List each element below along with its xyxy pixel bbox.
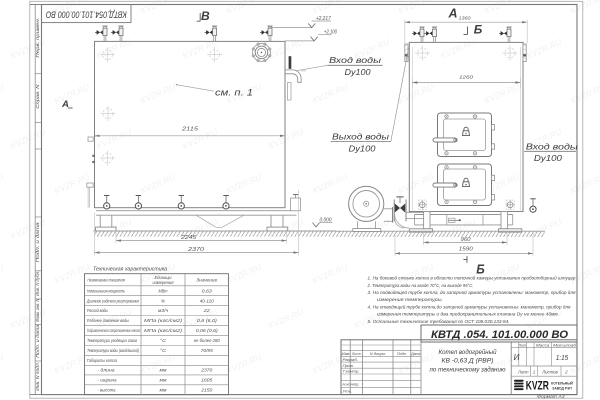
svg-text:KVZR.RU: KVZR.RU — [0, 0, 6, 16]
svg-text:KVZR.RU: KVZR.RU — [139, 0, 178, 16]
svg-text:5. Остальные технические требо: 5. Остальные технические требования по О… — [368, 319, 510, 324]
svg-text:В: В — [201, 9, 210, 23]
svg-text:КВТД .054. 101.00.000 ВО: КВТД .054. 101.00.000 ВО — [431, 329, 568, 341]
svg-text:Изм: Изм — [342, 352, 350, 356]
svg-text:измерения: измерения — [153, 280, 175, 285]
svg-text:Рабочее давление воды: Рабочее давление воды — [87, 318, 130, 323]
svg-text:Значение: Значение — [196, 278, 218, 283]
svg-text:1: 1 — [533, 369, 536, 374]
svg-text:1260: 1260 — [459, 75, 473, 81]
svg-text:Номинальная мощность: Номинальная мощность — [87, 288, 125, 293]
svg-text:Листов: Листов — [541, 369, 558, 374]
svg-text:2370: 2370 — [200, 368, 213, 373]
svg-text:- высота: - высота — [98, 387, 116, 392]
svg-text:KVZR.RU: KVZR.RU — [397, 81, 436, 106]
svg-text:Выход воды: Выход воды — [332, 133, 389, 142]
svg-text:Подп.: Подп. — [397, 352, 407, 356]
svg-text:- ширина: - ширина — [98, 377, 117, 382]
svg-text:Лит.: Лит. — [517, 343, 526, 348]
svg-text:КОТЕЛЬНЫЙ: КОТЕЛЬНЫЙ — [551, 382, 573, 386]
svg-text:KVZR.RU: KVZR.RU — [139, 81, 178, 106]
svg-text:Инв. N подл.: Инв. N подл. — [35, 362, 40, 391]
svg-text:70/95: 70/95 — [201, 348, 214, 353]
svg-text:1590: 1590 — [459, 247, 473, 253]
svg-text:KVZR.RU: KVZR.RU — [311, 81, 350, 106]
svg-text:Гидравлическое сопротивление к: Гидравлическое сопротивление котла — [87, 328, 140, 333]
svg-text:Взам. инв. N: Взам. инв. N — [35, 298, 40, 322]
svg-text:KVZR.RU: KVZR.RU — [0, 351, 6, 376]
svg-text:+2.100: +2.100 — [324, 30, 337, 36]
svg-text:Н.контр.: Н.контр. — [343, 382, 360, 387]
svg-text:KVZR.RU: KVZR.RU — [95, 126, 134, 151]
svg-text:KVZR.RU: KVZR.RU — [267, 36, 306, 61]
svg-text:KVZR.RU: KVZR.RU — [139, 351, 178, 376]
svg-text:КВТД.054.101.00.000 ВО: КВТД.054.101.00.000 ВО — [46, 9, 127, 19]
svg-text:ЗАВОД РЭП: ЗАВОД РЭП — [552, 387, 572, 391]
svg-text:1360: 1360 — [459, 15, 471, 21]
svg-text:Котел водогрейный: Котел водогрейный — [439, 348, 497, 356]
svg-text:А: А — [447, 6, 457, 20]
svg-text:°С: °С — [160, 338, 167, 343]
svg-text:мм: мм — [160, 387, 167, 392]
svg-text:А: А — [61, 99, 69, 110]
svg-text:Dy100: Dy100 — [349, 145, 377, 154]
svg-text:Температура уходящих газов: Температура уходящих газов — [87, 338, 138, 343]
svg-text:22: 22 — [203, 308, 211, 313]
svg-text:KVZR.RU: KVZR.RU — [483, 81, 522, 106]
svg-text:KVZR.RU: KVZR.RU — [397, 0, 436, 16]
svg-text:см. п. 1: см. п. 1 — [215, 88, 253, 98]
svg-text:Габариты котла: Габариты котла — [87, 358, 117, 363]
svg-text:Подп. и дата: Подп. и дата — [35, 324, 40, 358]
svg-text:Масштаб: Масштаб — [553, 343, 577, 348]
svg-text:Лист: Лист — [351, 352, 361, 356]
svg-text:KVZR.RU: KVZR.RU — [225, 0, 264, 16]
svg-text:Техническая характеристика: Техническая характеристика — [93, 266, 167, 272]
svg-text:измерения температуры.: измерения температуры. — [377, 297, 443, 302]
svg-text:40-110: 40-110 — [200, 298, 214, 303]
svg-text:KVZR.RU: KVZR.RU — [483, 261, 522, 286]
svg-text:2370: 2370 — [187, 247, 205, 253]
svg-text:2245: 2245 — [180, 235, 196, 241]
svg-text:N докум.: N докум. — [370, 352, 386, 356]
svg-text:°С: °С — [160, 348, 167, 353]
svg-text:Дата: Дата — [411, 352, 421, 356]
svg-text:Лист: Лист — [517, 369, 529, 374]
svg-text:Справ. N: Справ. N — [35, 84, 40, 109]
svg-text:KVZR.RU: KVZR.RU — [569, 261, 600, 286]
svg-text:Температура воды (вход/выход): Температура воды (вход/выход) — [87, 348, 139, 353]
svg-text:не более 280: не более 280 — [194, 338, 220, 343]
svg-text:KVZR.RU: KVZR.RU — [0, 261, 6, 286]
svg-text:KVZR.RU: KVZR.RU — [525, 306, 564, 331]
svg-text:2150: 2150 — [200, 387, 213, 392]
svg-text:%: % — [161, 298, 165, 303]
svg-text:измерения температуры и два пр: измерения температуры и два предохраните… — [377, 312, 559, 317]
svg-text:0,06 (0,6): 0,06 (0,6) — [196, 328, 219, 333]
svg-text:1:15: 1:15 — [556, 355, 569, 362]
svg-text:KVZR.RU: KVZR.RU — [569, 171, 600, 196]
svg-text:KVZR.RU: KVZR.RU — [569, 0, 600, 16]
svg-text:1. На боковой стенке котла в о: 1. На боковой стенке котла в области топ… — [368, 275, 576, 281]
svg-text:+2.217: +2.217 — [316, 16, 331, 22]
svg-text:KVZR.RU: KVZR.RU — [0, 81, 6, 106]
svg-text:Б: Б — [476, 263, 485, 277]
svg-text:KVZR.RU: KVZR.RU — [311, 261, 350, 286]
svg-text:Утв.: Утв. — [343, 388, 353, 393]
svg-text:Вход воды: Вход воды — [329, 56, 381, 65]
svg-text:KVZR.RU: KVZR.RU — [569, 81, 600, 106]
svg-text:Расход воды: Расход воды — [87, 308, 109, 313]
svg-text:МВт: МВт — [159, 288, 168, 293]
svg-text:KVZR.RU: KVZR.RU — [525, 216, 564, 241]
svg-text:KVZR.RU: KVZR.RU — [397, 171, 436, 196]
svg-text:KVZR.RU: KVZR.RU — [483, 0, 522, 16]
svg-text:KVZR.RU: KVZR.RU — [311, 0, 350, 16]
svg-text:KVZR.RU: KVZR.RU — [569, 351, 600, 376]
svg-text:Диапазон рабочего регулировани: Диапазон рабочего регулирования — [86, 298, 139, 303]
svg-text:KVZR.RU: KVZR.RU — [267, 306, 306, 331]
svg-text:KVZR.RU: KVZR.RU — [53, 171, 92, 196]
svg-text:мм: мм — [160, 377, 167, 382]
svg-text:- длина: - длина — [98, 368, 116, 373]
svg-text:КВ -0,63 Д (РВР): КВ -0,63 Д (РВР) — [442, 358, 494, 365]
svg-text:KVZR.RU: KVZR.RU — [311, 171, 350, 196]
svg-text:KVZR.RU: KVZR.RU — [53, 81, 92, 106]
svg-text:0,6 (6,0): 0,6 (6,0) — [197, 318, 218, 323]
svg-text:по техническому заданию: по техническому заданию — [430, 365, 506, 373]
svg-text:Б: Б — [474, 23, 483, 37]
svg-text:Инв. N дубл.: Инв. N дубл. — [35, 271, 40, 296]
svg-text:мм: мм — [160, 368, 167, 373]
svg-text:Т.контр.: Т.контр. — [343, 369, 360, 374]
svg-text:Подп. и дата: Подп. и дата — [35, 222, 40, 263]
svg-text:KVZR.RU: KVZR.RU — [53, 351, 92, 376]
svg-text:KVZR: KVZR — [526, 381, 550, 393]
svg-text:KVZR.RU: KVZR.RU — [225, 171, 264, 196]
svg-text:KVZR.RU: KVZR.RU — [439, 216, 478, 241]
svg-text:Вход воды: Вход воды — [526, 143, 578, 152]
svg-text:Dy100: Dy100 — [534, 154, 563, 163]
svg-text:И: И — [514, 353, 520, 362]
svg-text:Формат А3: Формат А3 — [537, 394, 565, 399]
svg-text:4. На отводящей трубе котла,до: 4. На отводящей трубе котла,до запорной … — [368, 303, 571, 309]
svg-text:KVZR.RU: KVZR.RU — [439, 36, 478, 61]
svg-text:1605: 1605 — [201, 377, 213, 382]
svg-text:Перв. примен.: Перв. примен. — [35, 18, 40, 58]
svg-text:2. Температура воды на входе 7: 2. Температура воды на входе 70°С, на вы… — [367, 283, 474, 288]
svg-text:KVZR.RU: KVZR.RU — [225, 351, 264, 376]
svg-text:KVZR.RU: KVZR.RU — [0, 171, 6, 196]
svg-text:Пров.: Пров. — [343, 363, 355, 368]
svg-text:KVZR.RU: KVZR.RU — [525, 36, 564, 61]
svg-text:Масса: Масса — [536, 343, 550, 348]
svg-text:м3/ч: м3/ч — [158, 308, 169, 313]
svg-text:3. На подводящей трубе котла,: 3. На подводящей трубе котла, до запорно… — [368, 289, 576, 295]
svg-text:KVZR.RU: KVZR.RU — [267, 126, 306, 151]
svg-text:Разраб.: Разраб. — [343, 357, 359, 362]
svg-text:0,63: 0,63 — [202, 288, 213, 293]
svg-text:2: 2 — [564, 369, 568, 374]
svg-text:KVZR.RU: KVZR.RU — [225, 261, 264, 286]
svg-text:МПа (кгс/см2): МПа (кгс/см2) — [144, 328, 183, 333]
svg-text:2115: 2115 — [181, 126, 199, 132]
svg-text:Dy100: Dy100 — [345, 68, 371, 77]
svg-text:960: 960 — [461, 237, 471, 243]
svg-text:МПа (кгс/см2): МПа (кгс/см2) — [144, 318, 183, 323]
svg-text:KVZR.RU: KVZR.RU — [139, 171, 178, 196]
svg-text:Наименование показателя: Наименование показателя — [88, 278, 126, 283]
svg-text:KVZR.RU: KVZR.RU — [95, 36, 134, 61]
